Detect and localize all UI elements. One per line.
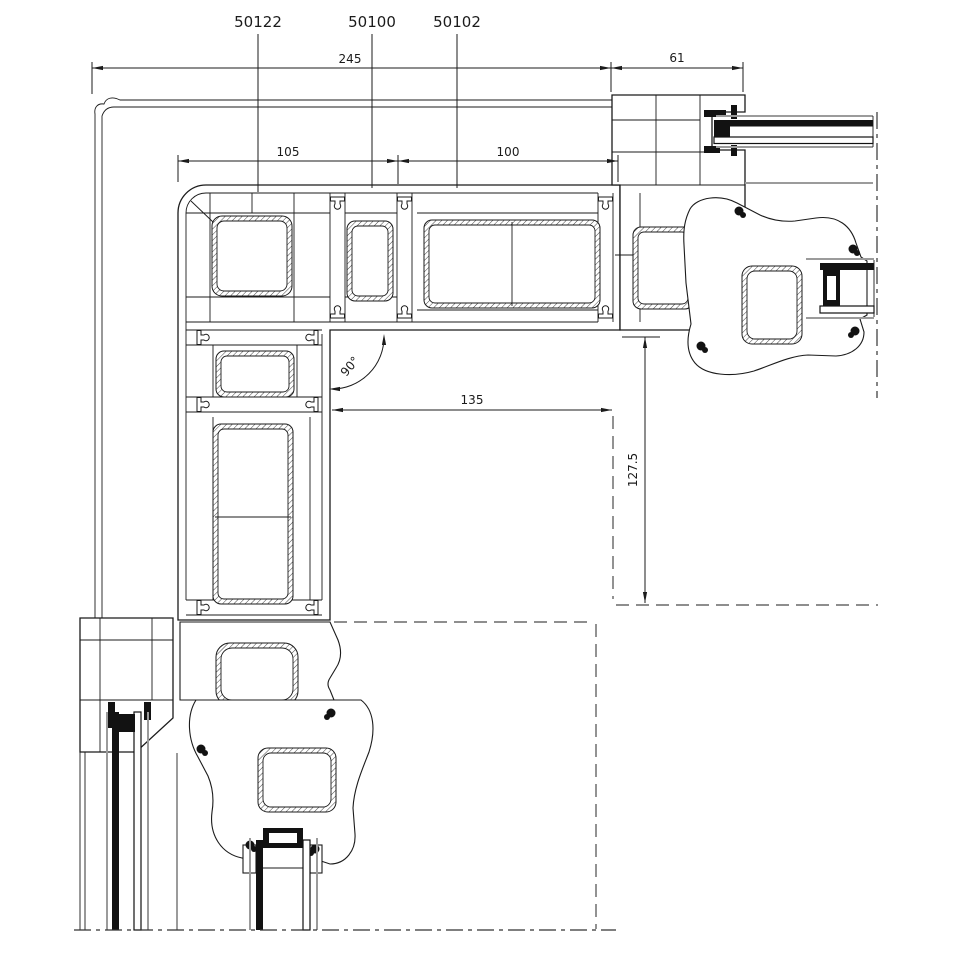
drawing-line	[202, 750, 208, 756]
dim-corner-width: 105	[277, 145, 300, 159]
part-label-50100: 50100	[348, 13, 396, 31]
part-label-50102: 50102	[433, 13, 481, 31]
glazing-bead-seal	[742, 266, 802, 344]
drawing-line	[218, 429, 288, 599]
spacer-bar	[118, 714, 135, 732]
dim-overall-width: 245	[339, 52, 362, 66]
reinforcement-chamber-coupler	[347, 221, 393, 301]
spacer-bar	[714, 126, 730, 137]
drawing-canvas: 50122 50100 50102 245 61 105 100 135 127…	[0, 0, 960, 960]
glass-pane	[256, 840, 263, 930]
drawing-line	[747, 271, 797, 339]
glazing-bead-seal	[258, 748, 336, 812]
reinforcement-chamber-vertical-large	[213, 424, 293, 604]
part-label-50122: 50122	[234, 13, 282, 31]
glass-pane	[714, 137, 873, 144]
glass-pane	[112, 712, 119, 930]
drawing-line	[854, 250, 860, 256]
glass-pane	[303, 840, 310, 930]
drawing-line	[352, 226, 388, 296]
reinforcement-chamber-adapter	[216, 643, 298, 705]
drawing-line	[638, 232, 688, 304]
glass-pane	[820, 263, 874, 270]
reinforcement-chamber-corner	[212, 216, 292, 296]
dim-opening-height: 127.5	[626, 453, 640, 487]
drawing-line	[848, 332, 854, 338]
dim-mullion-width: 100	[497, 145, 520, 159]
glass-pane	[820, 306, 874, 313]
spacer-slot	[269, 833, 297, 843]
dim-opening-width: 135	[461, 393, 484, 407]
drawing-line	[217, 221, 287, 291]
reinforcement-chamber-vertical-small	[216, 351, 294, 397]
glass-pane	[134, 712, 141, 930]
reinforcement-chamber-mullion	[424, 220, 600, 308]
spacer-slot	[827, 276, 836, 300]
dim-frame-depth: 61	[669, 51, 684, 65]
drawing-line	[740, 212, 746, 218]
drawing-line	[702, 347, 708, 353]
drawing-line	[221, 356, 289, 392]
drawing-line	[263, 753, 331, 807]
drawing-line	[221, 648, 293, 700]
glass-pane	[714, 120, 873, 127]
drawing-line	[324, 714, 330, 720]
profile-section-drawing: 50122 50100 50102 245 61 105 100 135 127…	[0, 0, 960, 960]
